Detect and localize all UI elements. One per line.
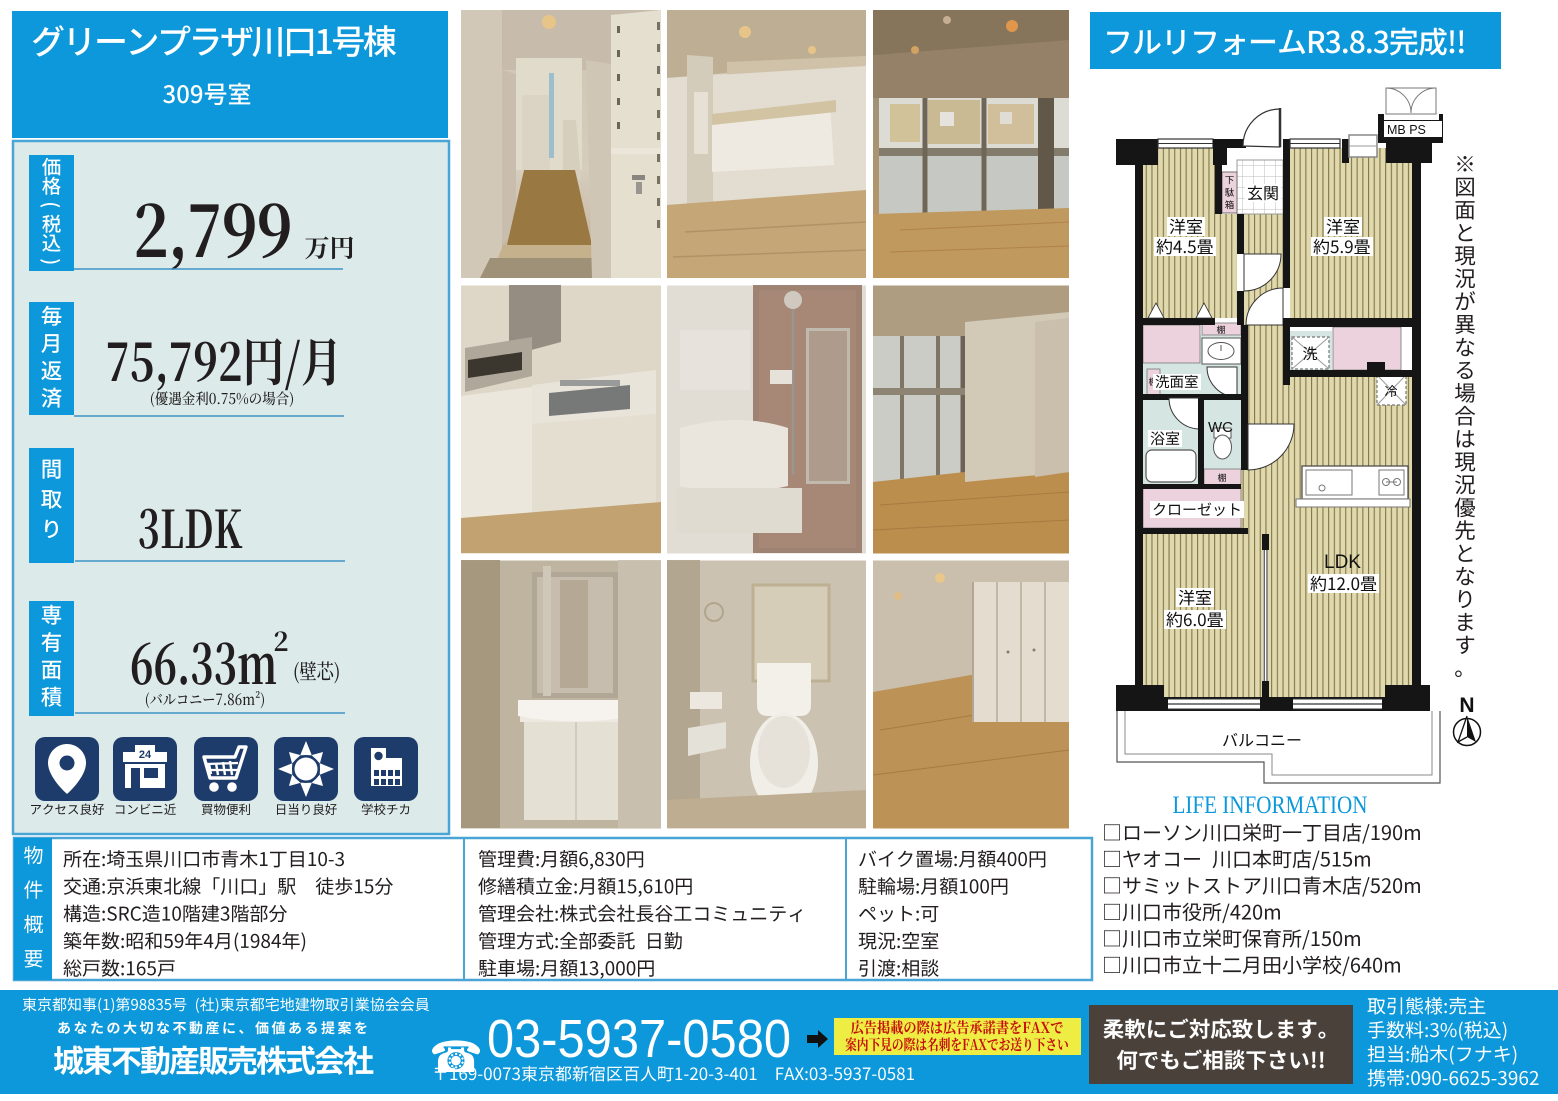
svg-text:24: 24 xyxy=(139,749,152,761)
svg-text:LDK: LDK xyxy=(1324,552,1361,573)
svg-text:MB PS: MB PS xyxy=(1387,123,1426,137)
svg-text:LIFE INFORMATION: LIFE INFORMATION xyxy=(1173,792,1368,819)
svg-text:03-5937-0580: 03-5937-0580 xyxy=(487,1009,791,1069)
svg-text:WC: WC xyxy=(1208,419,1233,436)
svg-text:N: N xyxy=(1459,694,1474,717)
